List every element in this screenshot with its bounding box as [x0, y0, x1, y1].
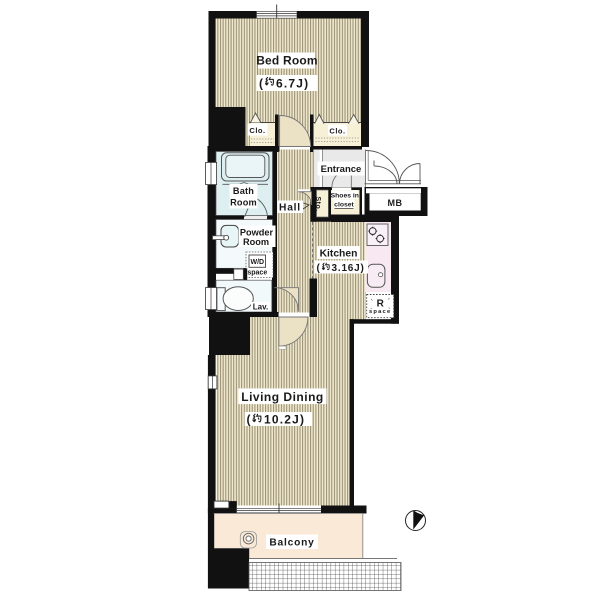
svg-text:Bath: Bath	[233, 186, 254, 196]
svg-text:space: space	[247, 270, 267, 277]
svg-text:3.16J): 3.16J)	[332, 263, 365, 274]
svg-text:Clo.: Clo.	[249, 126, 265, 135]
svg-text:(: (	[247, 413, 251, 427]
svg-text:Room: Room	[243, 237, 269, 247]
svg-text:Clo.: Clo.	[329, 126, 345, 135]
svg-text:Hall: Hall	[279, 203, 301, 214]
svg-text:Powder: Powder	[240, 228, 274, 238]
svg-text:6.7J): 6.7J)	[276, 77, 309, 91]
svg-text:Entrance: Entrance	[321, 164, 362, 175]
svg-text:Kitchen: Kitchen	[320, 248, 358, 259]
svg-text:closet: closet	[334, 202, 354, 209]
svg-text:Balcony: Balcony	[269, 538, 314, 549]
svg-text:R: R	[377, 299, 385, 310]
svg-text:space: space	[369, 309, 391, 315]
svg-text:10.2J): 10.2J)	[264, 413, 305, 427]
svg-text:(: (	[259, 77, 265, 91]
svg-text:Bed Room: Bed Room	[256, 54, 318, 68]
svg-text:Room: Room	[230, 198, 257, 208]
svg-text:Living Dining: Living Dining	[241, 390, 324, 404]
svg-text:Shoes in: Shoes in	[331, 192, 359, 199]
svg-text:MB: MB	[388, 198, 403, 208]
svg-text:Sto.: Sto.	[314, 197, 321, 212]
svg-text:W/D: W/D	[250, 259, 264, 266]
svg-text:Lav.: Lav.	[253, 302, 268, 311]
